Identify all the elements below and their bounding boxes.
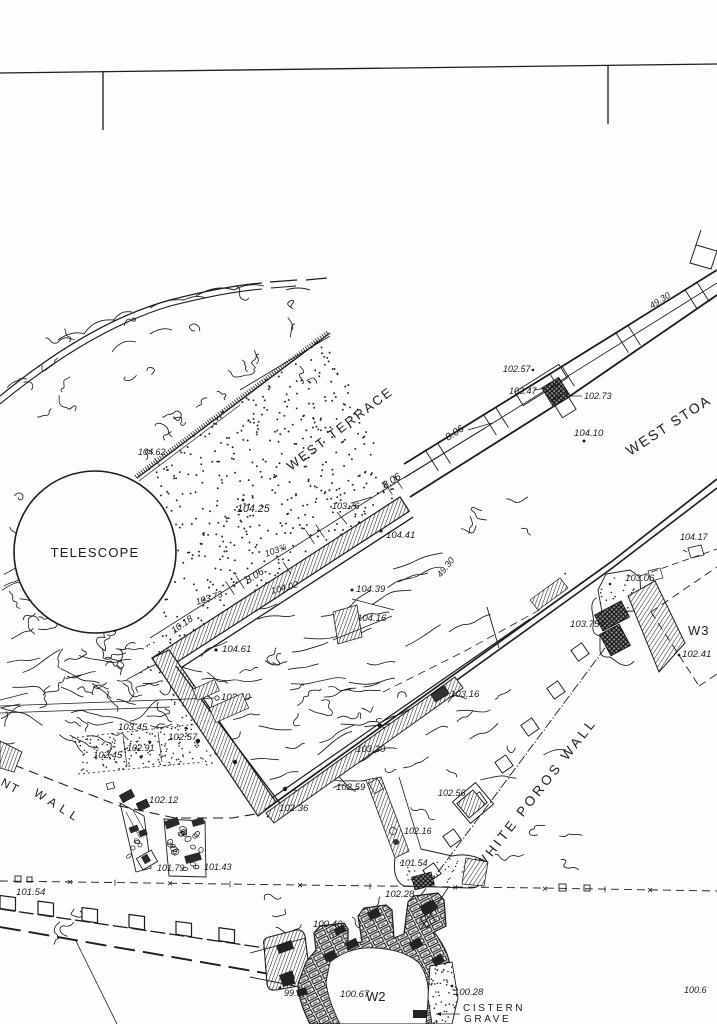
svg-text:102.56: 102.56	[438, 788, 466, 798]
svg-text:102.45: 102.45	[93, 750, 123, 761]
svg-text:103.47: 103.47	[509, 386, 538, 396]
svg-text:102.28: 102.28	[385, 889, 415, 900]
svg-text:103.75: 103.75	[570, 619, 600, 630]
svg-text:102.16: 102.16	[404, 826, 432, 836]
svg-text:99.57: 99.57	[284, 988, 308, 998]
svg-text:102.41: 102.41	[682, 649, 711, 660]
svg-text:100.46: 100.46	[313, 919, 343, 930]
svg-text:103.16: 103.16	[450, 689, 480, 700]
svg-text:104.16: 104.16	[357, 613, 387, 624]
svg-text:100.6: 100.6	[684, 985, 707, 995]
svg-text:101.54: 101.54	[400, 858, 428, 868]
svg-text:101.79: 101.79	[157, 863, 185, 873]
svg-text:102.73: 102.73	[584, 391, 612, 401]
svg-text:104.25: 104.25	[237, 503, 270, 515]
svg-text:100.28: 100.28	[454, 987, 484, 998]
svg-text:101.43: 101.43	[204, 862, 232, 872]
svg-text:104.39: 104.39	[356, 584, 386, 595]
svg-text:104.17: 104.17	[680, 532, 709, 542]
svg-text:104.41: 104.41	[386, 530, 415, 541]
svg-text:104.10: 104.10	[574, 428, 604, 439]
svg-text:W3: W3	[688, 623, 710, 638]
svg-text:104.62: 104.62	[138, 447, 166, 457]
svg-text:102.91: 102.91	[127, 743, 155, 753]
svg-text:GRAVE: GRAVE	[464, 1014, 511, 1024]
svg-text:102.36: 102.36	[279, 803, 309, 814]
svg-text:W2: W2	[366, 989, 386, 1004]
svg-text:103.30: 103.30	[356, 744, 386, 755]
svg-text:TELESCOPE: TELESCOPE	[51, 545, 140, 560]
svg-text:102.57: 102.57	[168, 732, 198, 743]
svg-text:CISTERN: CISTERN	[463, 1003, 525, 1014]
svg-text:103.76: 103.76	[332, 501, 360, 511]
svg-text:102.59: 102.59	[336, 782, 366, 793]
svg-text:104.61: 104.61	[222, 644, 251, 655]
svg-text:102.57: 102.57	[503, 364, 532, 374]
svg-text:102.12: 102.12	[149, 795, 179, 806]
svg-text:103.45: 103.45	[118, 722, 148, 733]
svg-text:101.54: 101.54	[16, 887, 45, 898]
